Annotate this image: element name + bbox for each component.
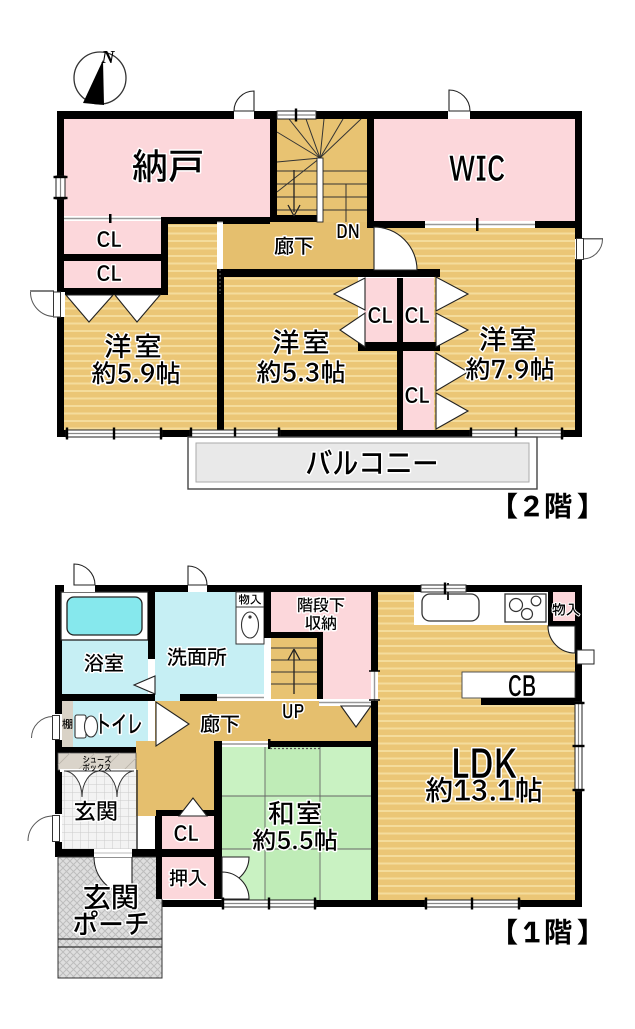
svg-text:N: N	[101, 47, 116, 67]
